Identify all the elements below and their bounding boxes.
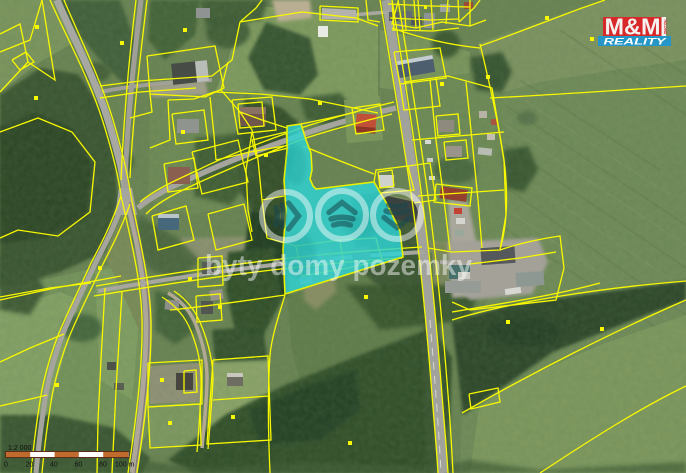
svg-text:byty domy pozemky: byty domy pozemky: [205, 250, 472, 282]
svg-text:100 m: 100 m: [115, 462, 135, 469]
svg-text:1:2 000: 1:2 000: [8, 445, 31, 452]
svg-text:80: 80: [99, 462, 107, 469]
svg-text:40: 40: [50, 462, 58, 469]
svg-text:60: 60: [75, 462, 83, 469]
svg-text:0: 0: [4, 462, 8, 469]
svg-text:20: 20: [26, 462, 34, 469]
svg-text:HOLDING: HOLDING: [663, 20, 667, 35]
svg-text:REALITY: REALITY: [604, 37, 669, 48]
